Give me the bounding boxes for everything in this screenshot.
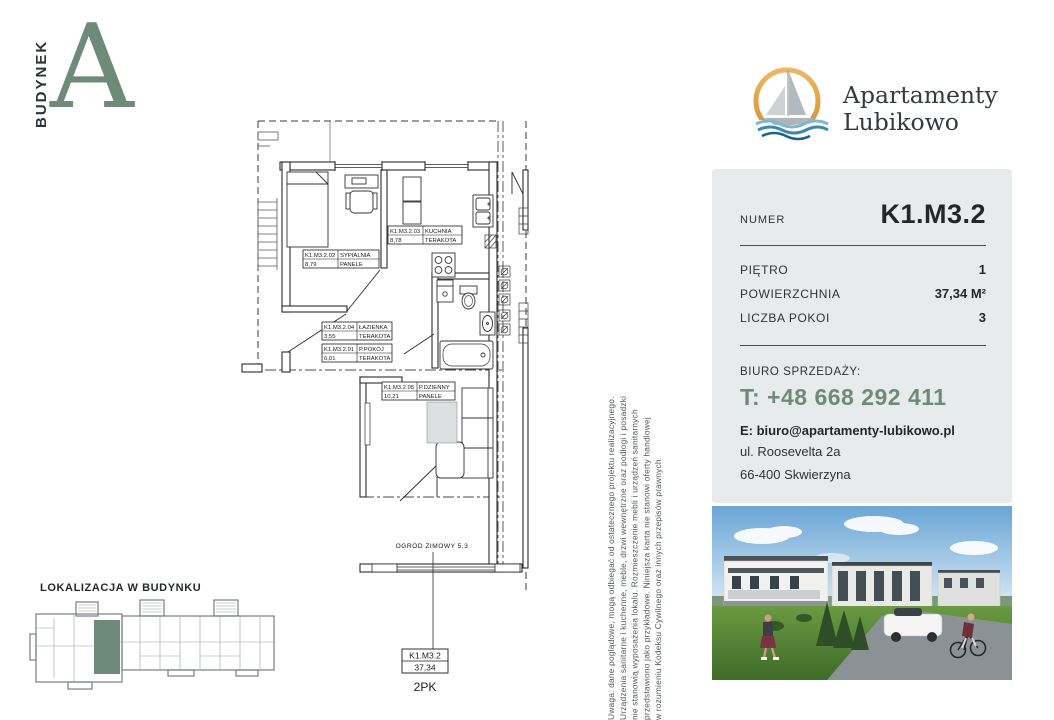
svg-text:PANELE: PANELE bbox=[419, 394, 442, 400]
area-row: POWIERZCHNIA 37,34 M² bbox=[740, 282, 986, 306]
svg-text:6,01: 6,01 bbox=[324, 356, 335, 362]
highlighted-unit[interactable] bbox=[94, 620, 120, 674]
svg-text:K1.M3.2.05: K1.M3.2.05 bbox=[384, 385, 415, 391]
svg-text:8,78: 8,78 bbox=[390, 238, 402, 244]
svg-text:TERAKOTA: TERAKOTA bbox=[359, 334, 390, 340]
svg-text:KUCHNIA: KUCHNIA bbox=[425, 229, 452, 235]
floor-plan-drawing: K1.M3.2.02 SYPIALNIA 8,79 PANELE K1.M3.2… bbox=[240, 90, 580, 705]
svg-text:37,34: 37,34 bbox=[414, 663, 436, 673]
svg-text:K1.M3.2.04: K1.M3.2.04 bbox=[324, 325, 355, 331]
address-city: 66-400 Skwierzyna bbox=[740, 465, 986, 484]
svg-text:2PK: 2PK bbox=[414, 680, 437, 694]
svg-text:K1.M3.2.03: K1.M3.2.03 bbox=[390, 229, 421, 235]
phone-link[interactable]: T: +48 668 292 411 bbox=[740, 384, 986, 411]
address-street: ul. Roosevelta 2a bbox=[740, 442, 986, 461]
disclaimer-line: Urządzenia sanitarne i kuchenne, meble, … bbox=[618, 346, 630, 720]
rug bbox=[427, 402, 457, 443]
building-letter: A bbox=[50, 10, 134, 126]
sailboat-logo-icon bbox=[744, 58, 832, 146]
sofa-chaise bbox=[436, 442, 464, 478]
building-photo bbox=[712, 506, 1012, 680]
disclaimer-line: nie stanowią wyposażenia lokalu. Rozmies… bbox=[630, 346, 642, 720]
logo-line1: Apartamenty bbox=[843, 82, 998, 109]
number-label: NUMER bbox=[740, 214, 785, 226]
rooms-row: LICZBA POKOI 3 bbox=[740, 306, 986, 330]
radiator bbox=[365, 403, 370, 445]
disclaimer-text: Uwaga: dane poglądowe, mogą odbiegać od … bbox=[606, 346, 665, 720]
svg-text:8,79: 8,79 bbox=[305, 262, 316, 268]
room-label: K1.M3.2.01 P.POKÓJ 6,01 TERAKOTA bbox=[322, 344, 392, 362]
svg-text:P.POKÓJ: P.POKÓJ bbox=[359, 346, 384, 353]
svg-text:3,55: 3,55 bbox=[324, 334, 336, 340]
bed bbox=[287, 172, 328, 247]
location-title: LOKALIZACJA W BUDYNKU bbox=[40, 582, 201, 594]
stairs-hatching bbox=[258, 132, 278, 270]
svg-text:K1.M3.2.01: K1.M3.2.01 bbox=[324, 347, 354, 353]
svg-text:ŁAZIENKA: ŁAZIENKA bbox=[359, 325, 388, 331]
svg-text:SYPIALNIA: SYPIALNIA bbox=[340, 253, 371, 259]
logo-line2: Lubikowo bbox=[843, 109, 998, 136]
washer bbox=[437, 280, 453, 302]
room-label: K1.M3.2.03 KUCHNIA 8,78 TERAKOTA bbox=[388, 226, 462, 244]
plan-summary-box: K1.M3.2 37,34 2PK bbox=[402, 649, 448, 694]
property-card-page: BUDYNEK A bbox=[0, 0, 1054, 720]
svg-text:P.DZIENNY: P.DZIENNY bbox=[419, 385, 450, 391]
svg-text:TERAKOTA: TERAKOTA bbox=[359, 356, 390, 362]
sales-office-label: BIURO SPRZEDAŻY: bbox=[740, 366, 986, 378]
chair bbox=[350, 191, 373, 213]
svg-text:PANELE: PANELE bbox=[340, 262, 363, 268]
svg-text:TERAKOTA: TERAKOTA bbox=[425, 238, 456, 244]
room-label: K1.M3.2.05 P.DZIENNY 10,21 PANELE bbox=[382, 382, 455, 400]
svg-text:10,21: 10,21 bbox=[384, 394, 399, 400]
floor-row: PIĘTRO 1 bbox=[740, 258, 986, 282]
disclaimer-line: Uwaga: dane poglądowe, mogą odbiegać od … bbox=[606, 346, 618, 720]
disclaimer-line: przedstawiono jako przykładowe. Niniejsz… bbox=[641, 346, 653, 720]
kitchen-cabinet bbox=[403, 177, 421, 201]
winter-garden-label: OGRÓD ZIMOWY 5,3 bbox=[396, 541, 469, 550]
apartment-number: K1.M3.2 bbox=[880, 199, 986, 230]
divider bbox=[740, 245, 986, 246]
email-link[interactable]: E: biuro@apartamenty-lubikowo.pl bbox=[740, 423, 986, 438]
site-plan-outline bbox=[30, 600, 274, 689]
site-plan bbox=[28, 598, 290, 714]
room-label: K1.M3.2.02 SYPIALNIA 8,79 PANELE bbox=[303, 250, 379, 268]
building-label: BUDYNEK bbox=[33, 34, 50, 128]
logo-text: Apartamenty Lubikowo bbox=[843, 82, 998, 136]
svg-text:K1.M3.2: K1.M3.2 bbox=[409, 651, 441, 661]
stove bbox=[432, 253, 455, 277]
divider bbox=[740, 345, 986, 346]
apartment-info-panel: NUMER K1.M3.2 PIĘTRO 1 POWIERZCHNIA 37,3… bbox=[712, 169, 1012, 503]
svg-text:K1.M3.2.02: K1.M3.2.02 bbox=[305, 253, 335, 259]
room-label: K1.M3.2.04 ŁAZIENKA 3,55 TERAKOTA bbox=[322, 322, 392, 340]
disclaimer-line: w rozumieniu Kodeksu Cywilnego oraz inny… bbox=[653, 346, 665, 720]
